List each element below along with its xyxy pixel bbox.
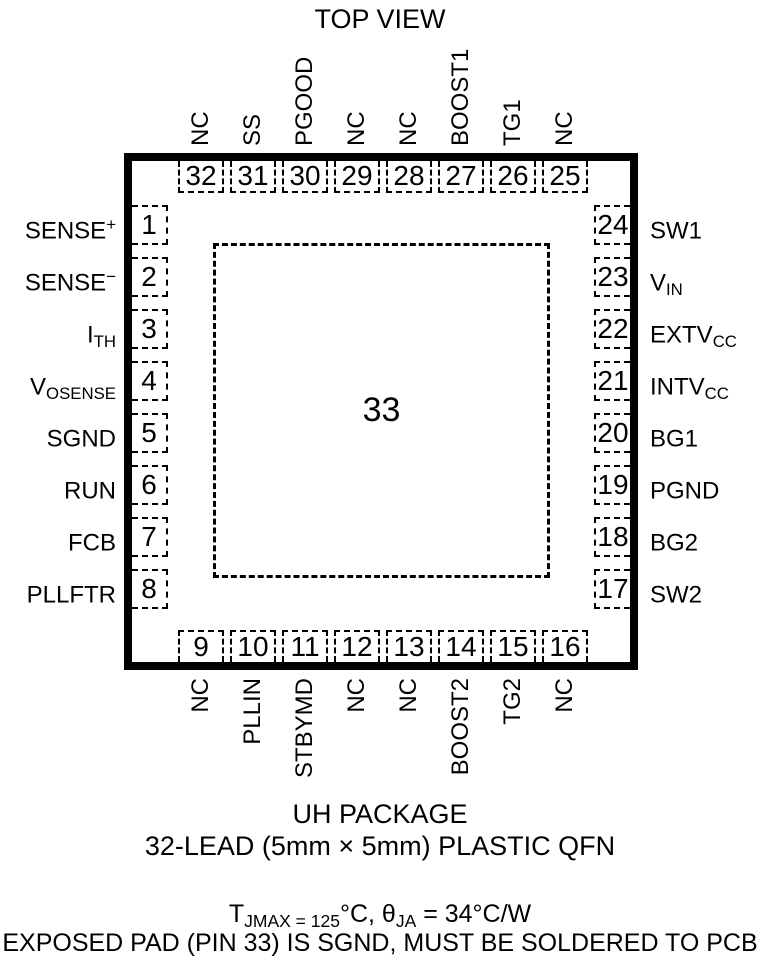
top-view-title: TOP VIEW: [0, 4, 760, 35]
pin-20-label: BG1: [650, 413, 698, 453]
pin-27: 27: [438, 161, 484, 193]
thermal-tail-text: = 34°C/W: [416, 900, 531, 928]
pin-21-number: 21: [597, 365, 628, 397]
pin-25-label: NC: [552, 111, 578, 146]
pin-19-label: PGND: [650, 465, 719, 505]
pin-13: 13: [386, 630, 432, 662]
pin-26-number: 26: [497, 160, 528, 192]
thermal-mid-text: °C, θ: [340, 900, 396, 928]
pin-24-label: SW1: [650, 205, 702, 245]
pin-4-label: VOSENSE: [30, 361, 116, 401]
exposed-pad: 33: [213, 243, 550, 578]
pin-23-number: 23: [597, 261, 628, 293]
pin-29-number: 29: [341, 160, 372, 192]
pin-3-label: ITH: [87, 309, 116, 349]
pin-23: 23: [594, 257, 630, 297]
pin-5-number: 5: [141, 417, 157, 449]
pin-17: 17: [594, 569, 630, 609]
pin-11-number: 11: [290, 631, 319, 663]
pin-21: 21: [594, 361, 630, 401]
pin-2-number: 2: [141, 261, 157, 293]
pin-2: 2: [132, 257, 168, 297]
exposed-pad-number: 33: [363, 391, 401, 430]
pin-13-number: 13: [393, 631, 424, 663]
pin-col-right: 24 23 22 21 20 19 18 17: [594, 205, 630, 609]
pin-24: 24: [594, 205, 630, 245]
pin-6-label: RUN: [64, 465, 116, 505]
pin-10: 10: [230, 630, 276, 662]
pin-25: 25: [542, 161, 588, 193]
pin-32-label: NC: [188, 111, 214, 146]
pin-18: 18: [594, 517, 630, 557]
thermal-t-subscript: JMAX = 125: [244, 911, 340, 931]
pin-15-label: TG2: [500, 678, 526, 725]
pin-19-number: 19: [597, 469, 628, 501]
left-pin-labels: SENSE+ SENSE− ITH VOSENSE SGND RUN FCB P…: [25, 205, 116, 609]
pin-7-label: FCB: [68, 517, 116, 557]
pin-1-label: SENSE+: [25, 205, 116, 245]
pin-9: 9: [178, 630, 224, 662]
pin-22-label: EXTVCC: [650, 309, 737, 349]
pin-12-label: NC: [344, 678, 370, 713]
pin-16-number: 16: [549, 631, 580, 663]
pin-28: 28: [386, 161, 432, 193]
exposed-pad-note: EXPOSED PAD (PIN 33) IS SGND, MUST BE SO…: [0, 929, 760, 958]
pin-7: 7: [132, 517, 168, 557]
pin-29-label: NC: [344, 111, 370, 146]
pin-10-number: 10: [237, 631, 268, 663]
pin-20-number: 20: [597, 417, 628, 449]
pin-row-top: 32 31 30 29 28 27 26 25: [178, 161, 588, 193]
pin-20: 20: [594, 413, 630, 453]
pin-21-label: INTVCC: [650, 361, 729, 401]
pin-9-label: NC: [188, 678, 214, 713]
right-pin-labels: SW1 VIN EXTVCC INTVCC BG1 PGND BG2 SW2: [650, 205, 737, 609]
pin-23-label: VIN: [650, 257, 683, 297]
pin-32: 32: [178, 161, 224, 193]
pin-3: 3: [132, 309, 168, 349]
pin-26-label: TG1: [500, 99, 526, 146]
pin-8-number: 8: [141, 573, 157, 605]
pin-30-number: 30: [289, 160, 320, 192]
pin-28-number: 28: [393, 160, 424, 192]
pin-12-number: 12: [341, 631, 372, 663]
qfn-pinout-diagram: TOP VIEW 33 32 31 30 29 28 27 26 25 9 10…: [0, 0, 760, 968]
pin-1-number: 1: [141, 209, 157, 241]
pin-22: 22: [594, 309, 630, 349]
pin-22-number: 22: [597, 313, 628, 345]
pin-17-label: SW2: [650, 569, 702, 609]
pin-29: 29: [334, 161, 380, 193]
pin-15-number: 15: [497, 631, 528, 663]
pin-30-label: PGOOD: [292, 57, 318, 146]
pin-25-number: 25: [549, 160, 580, 192]
pin-10-label: PLLIN: [240, 678, 266, 745]
pin-15: 15: [490, 630, 536, 662]
pin-31: 31: [230, 161, 276, 193]
pin-27-label: BOOST1: [448, 49, 474, 146]
pin-18-label: BG2: [650, 517, 698, 557]
pin-31-number: 31: [237, 160, 268, 192]
pin-17-number: 17: [597, 573, 628, 605]
pin-col-left: 1 2 3 4 5 6 7 8: [132, 205, 168, 609]
package-description: 32-LEAD (5mm × 5mm) PLASTIC QFN: [0, 831, 760, 862]
pin-16: 16: [542, 630, 588, 662]
pin-1: 1: [132, 205, 168, 245]
pin-4: 4: [132, 361, 168, 401]
pin-19: 19: [594, 465, 630, 505]
pin-13-label: NC: [396, 678, 422, 713]
pin-8-label: PLLFTR: [27, 569, 116, 609]
pin-28-label: NC: [396, 111, 422, 146]
pin-27-number: 27: [445, 160, 476, 192]
pin-3-number: 3: [141, 313, 157, 345]
pin-9-number: 9: [193, 631, 209, 663]
pin-14-label: BOOST2: [448, 678, 474, 775]
thermal-note: TJMAX = 125°C, θJA = 34°C/W: [0, 900, 760, 932]
pin-row-bottom: 9 10 11 12 13 14 15 16: [178, 630, 588, 662]
pin-31-label: SS: [240, 114, 266, 146]
pin-6: 6: [132, 465, 168, 505]
pin-7-number: 7: [141, 521, 157, 553]
pin-14: 14: [438, 630, 484, 662]
pin-2-label: SENSE−: [25, 257, 116, 297]
pin-18-number: 18: [597, 521, 628, 553]
thermal-t-symbol: T: [229, 900, 244, 928]
pin-5: 5: [132, 413, 168, 453]
pin-16-label: NC: [552, 678, 578, 713]
package-name: UH PACKAGE: [0, 799, 760, 830]
pin-24-number: 24: [597, 209, 628, 241]
thermal-theta-subscript: JA: [396, 911, 416, 931]
pin-8: 8: [132, 569, 168, 609]
pin-6-number: 6: [141, 469, 157, 501]
pin-14-number: 14: [445, 631, 476, 663]
pin-4-number: 4: [141, 365, 157, 397]
pin-30: 30: [282, 161, 328, 193]
pin-5-label: SGND: [47, 413, 116, 453]
pin-26: 26: [490, 161, 536, 193]
pin-11-label: STBYMD: [292, 678, 318, 778]
pin-32-number: 32: [185, 160, 216, 192]
pin-11: 11: [282, 630, 328, 662]
pin-12: 12: [334, 630, 380, 662]
